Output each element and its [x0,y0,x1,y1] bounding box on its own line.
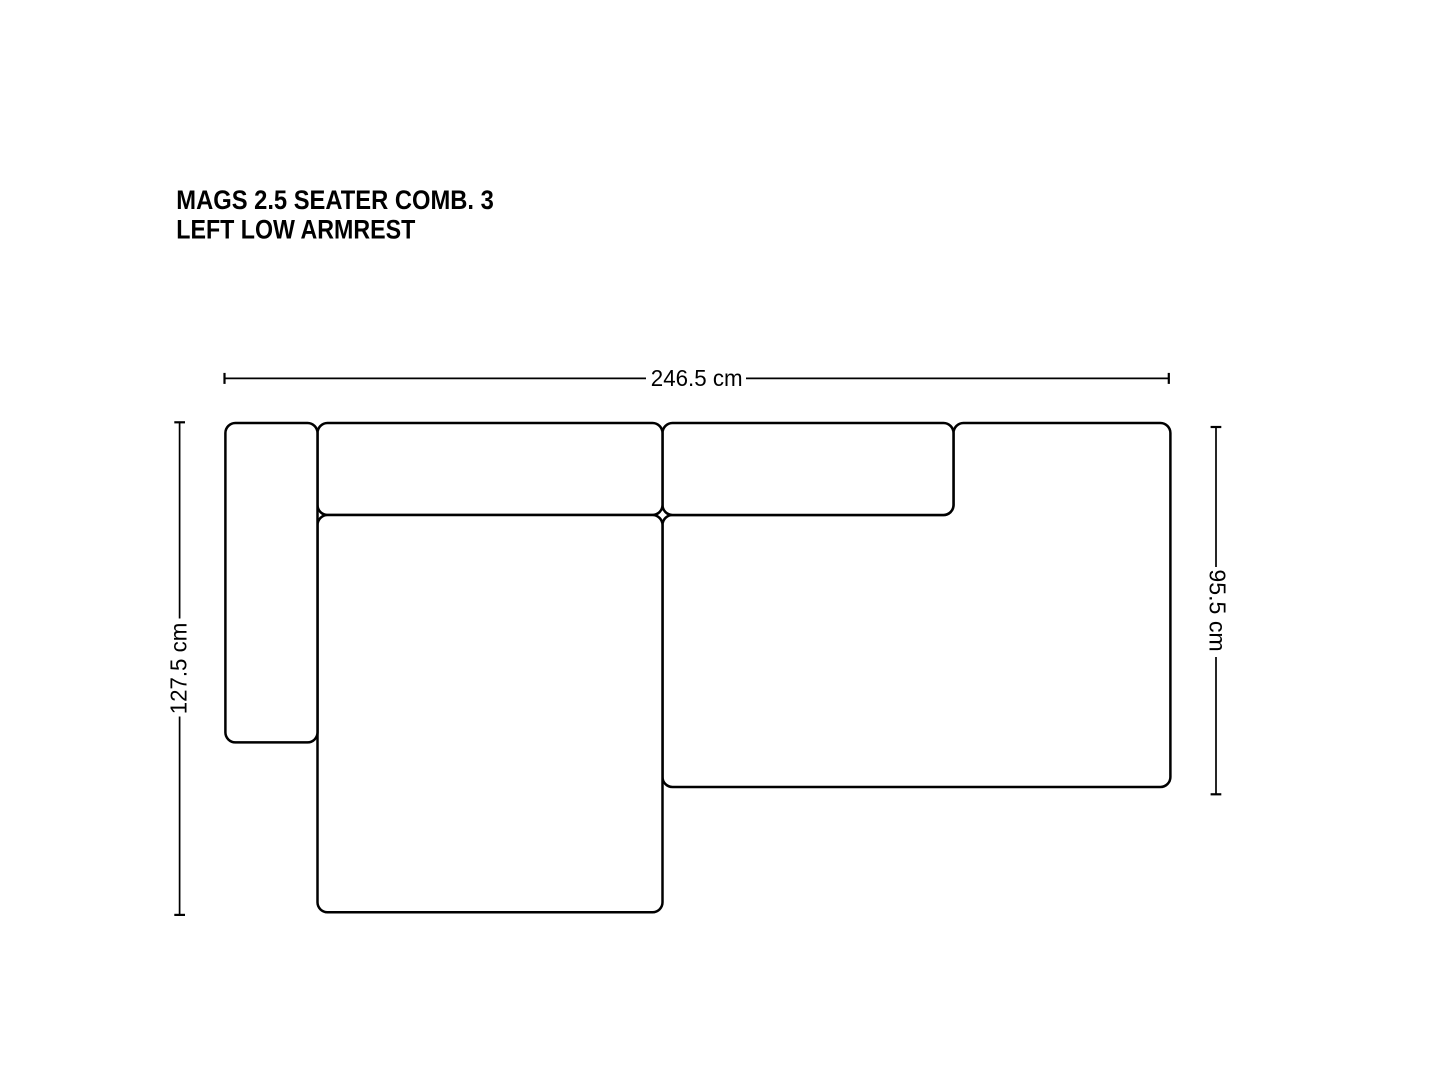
svg-text:MAGS 2.5 SEATER COMB. 3: MAGS 2.5 SEATER COMB. 3 [176,185,494,215]
svg-text:95.5 cm: 95.5 cm [1205,569,1231,651]
svg-text:LEFT LOW ARMREST: LEFT LOW ARMREST [176,215,415,245]
svg-text:127.5 cm: 127.5 cm [166,623,192,715]
svg-text:246.5 cm: 246.5 cm [651,365,743,391]
